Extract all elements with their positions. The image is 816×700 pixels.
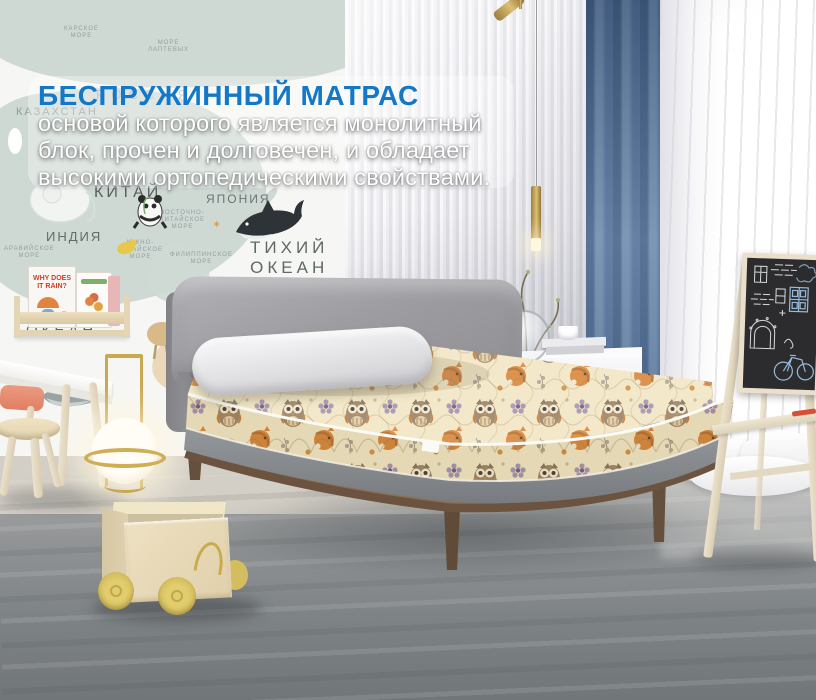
bookshelf-board [16, 330, 128, 336]
bookshelf-bracket-left [14, 296, 20, 338]
book-title: WHY DOES IT RAIN? [29, 275, 75, 290]
ceiling-spot-stem [519, 0, 522, 9]
overlay-text-line3: высокими ортопедическими свойствами. [38, 164, 490, 191]
bed-leg-middle [444, 508, 460, 570]
chalkboard [738, 253, 816, 396]
chalk-doodles [743, 258, 816, 390]
bookshelf-bracket-right [124, 296, 130, 338]
pendant-lamp [531, 186, 541, 240]
floor-lamp-frame-top [105, 354, 143, 358]
book2-title-art [81, 279, 107, 284]
overlay-text-line1: основой которого является монолитный [38, 110, 482, 137]
bookshelf-rail [16, 312, 128, 324]
product-photo-kids-bedroom: КАРСКОЕ МОРЕ МОРЕ ЛАПТЕВЫХ РОССИЯ КАЗАХС… [0, 0, 816, 700]
book-umbrella-art [37, 297, 59, 308]
cart-wheel-left-hub [110, 585, 122, 597]
kids-chair-seat [0, 384, 45, 411]
pendant-cord [536, 0, 537, 190]
floor-lamp-base [104, 478, 146, 493]
overlay-title: БЕСПРУЖИННЫЙ МАТРАС [38, 80, 419, 112]
cart-wheel-right-hub [171, 590, 183, 602]
overlay-text-line2: блок, прочен и долговечен, и обладает [38, 137, 470, 164]
